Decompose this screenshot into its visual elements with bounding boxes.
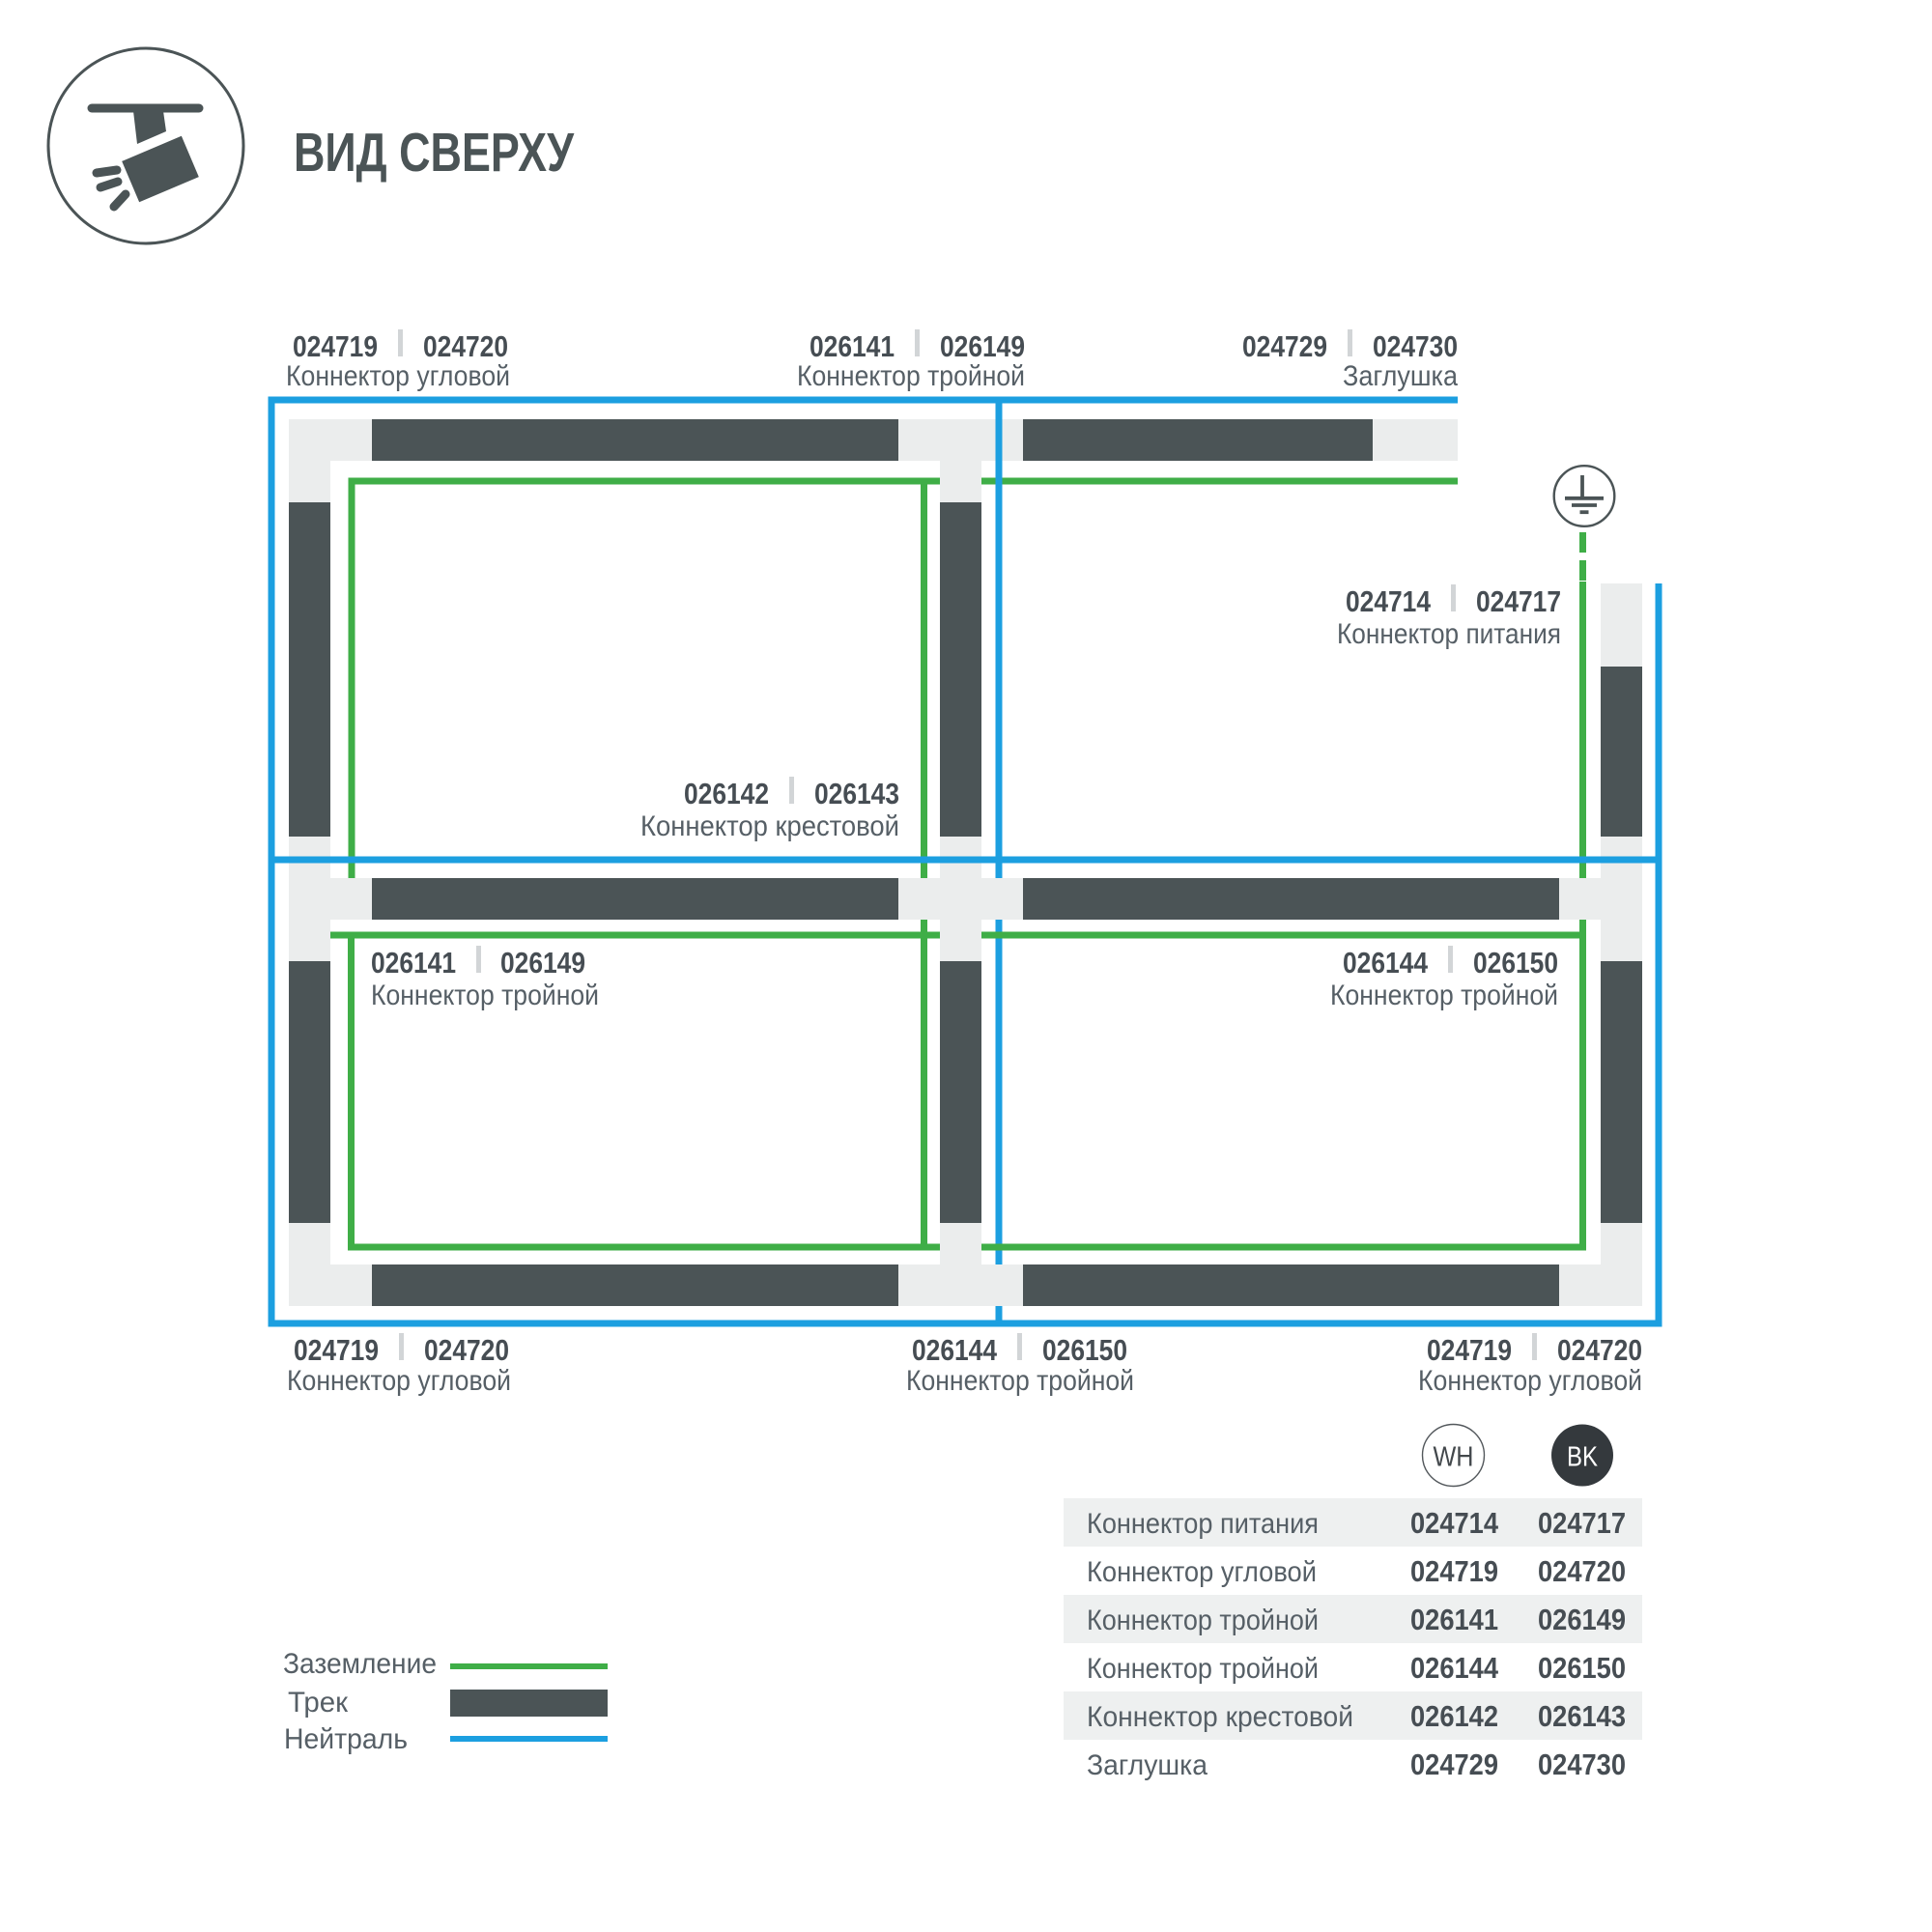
svg-text:026144: 026144 [912, 1334, 997, 1367]
svg-text:024719: 024719 [294, 1334, 379, 1367]
svg-text:024729: 024729 [1242, 330, 1327, 363]
svg-text:024730: 024730 [1538, 1748, 1626, 1781]
svg-text:026142: 026142 [1410, 1700, 1498, 1733]
svg-text:024720: 024720 [424, 1334, 509, 1367]
svg-text:024729: 024729 [1410, 1748, 1498, 1781]
svg-text:026149: 026149 [940, 330, 1025, 363]
svg-text:024730: 024730 [1373, 330, 1458, 363]
svg-text:024714: 024714 [1410, 1507, 1498, 1540]
svg-text:026141: 026141 [810, 330, 895, 363]
svg-text:Коннектор угловой: Коннектор угловой [1418, 1365, 1642, 1397]
svg-text:024720: 024720 [423, 330, 508, 363]
svg-text:Коннектор тройной: Коннектор тройной [1087, 1605, 1319, 1636]
svg-text:026143: 026143 [1538, 1700, 1626, 1733]
svg-text:Коннектор тройной: Коннектор тройной [906, 1365, 1134, 1397]
svg-text:ВИД СВЕРХУ: ВИД СВЕРХУ [294, 122, 574, 184]
svg-text:026150: 026150 [1538, 1652, 1626, 1685]
svg-text:Заглушка: Заглушка [1087, 1749, 1207, 1781]
svg-text:024719: 024719 [293, 330, 378, 363]
svg-text:024720: 024720 [1557, 1334, 1642, 1367]
svg-text:Коннектор угловой: Коннектор угловой [1087, 1556, 1317, 1588]
svg-text:Коннектор тройной: Коннектор тройной [797, 360, 1025, 392]
svg-text:026144: 026144 [1410, 1652, 1498, 1685]
svg-text:Нейтраль: Нейтраль [284, 1723, 408, 1755]
svg-text:Коннектор тройной: Коннектор тройной [1330, 980, 1558, 1011]
svg-text:024717: 024717 [1476, 585, 1561, 618]
svg-text:026150: 026150 [1042, 1334, 1127, 1367]
svg-text:Коннектор крестовой: Коннектор крестовой [1087, 1701, 1353, 1733]
svg-text:026144: 026144 [1343, 947, 1428, 980]
svg-text:Коннектор угловой: Коннектор угловой [286, 360, 510, 392]
svg-text:Коннектор крестовой: Коннектор крестовой [640, 810, 899, 842]
svg-text:WH: WH [1434, 1442, 1474, 1473]
svg-text:024720: 024720 [1538, 1555, 1626, 1588]
svg-text:026143: 026143 [814, 778, 899, 810]
svg-text:Коннектор питания: Коннектор питания [1087, 1508, 1319, 1540]
svg-text:Трек: Трек [288, 1687, 349, 1719]
svg-text:Заглушка: Заглушка [1343, 360, 1458, 392]
svg-text:024717: 024717 [1538, 1507, 1626, 1540]
svg-text:Коннектор угловой: Коннектор угловой [287, 1365, 511, 1397]
svg-text:BK: BK [1567, 1442, 1599, 1473]
svg-text:026149: 026149 [1538, 1604, 1626, 1636]
svg-text:026141: 026141 [371, 947, 456, 980]
svg-text:Коннектор тройной: Коннектор тройной [1087, 1653, 1319, 1685]
svg-text:024719: 024719 [1427, 1334, 1512, 1367]
svg-text:Заземление: Заземление [283, 1648, 437, 1680]
svg-text:026142: 026142 [684, 778, 769, 810]
svg-text:024714: 024714 [1346, 585, 1431, 618]
svg-text:024719: 024719 [1410, 1555, 1498, 1588]
svg-text:Коннектор тройной: Коннектор тройной [371, 980, 599, 1011]
svg-text:026141: 026141 [1410, 1604, 1498, 1636]
svg-text:026149: 026149 [500, 947, 585, 980]
svg-text:Коннектор питания: Коннектор питания [1337, 618, 1561, 650]
svg-text:026150: 026150 [1473, 947, 1558, 980]
